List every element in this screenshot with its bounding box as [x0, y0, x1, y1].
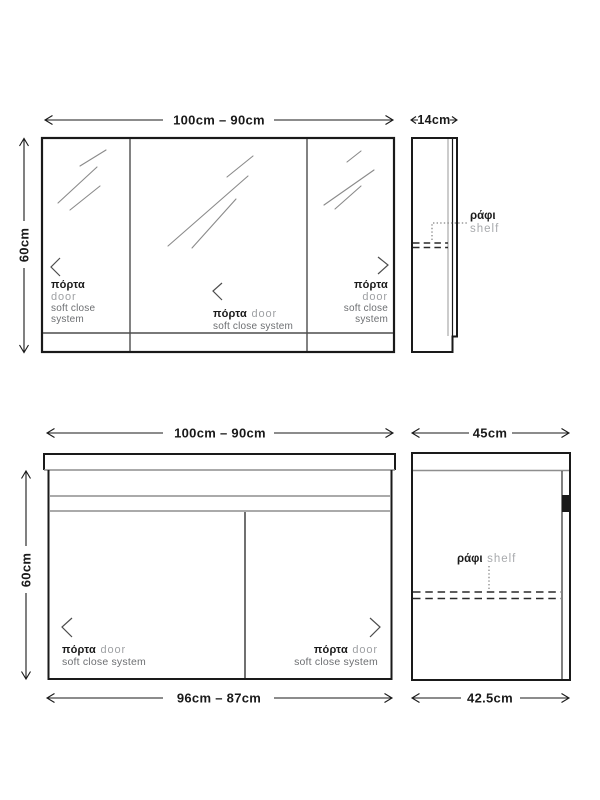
- soft-close-system-label: soft close system: [213, 321, 293, 332]
- vanity-left-door-label: πόρτα door soft close system: [62, 642, 146, 668]
- system-label: system: [344, 314, 388, 325]
- mirror-cabinet-side-view: [412, 138, 467, 352]
- countertop-outline: [44, 454, 395, 470]
- shelf-label-greek: ράφι: [457, 553, 483, 565]
- side-outline: [412, 138, 457, 352]
- door-label-english: door: [251, 308, 277, 320]
- vanity-shelf-label: ράφι shelf: [457, 551, 516, 566]
- soft-close-system-label: soft close system: [294, 657, 378, 668]
- door-label-greek: πόρτα: [62, 644, 96, 656]
- mirror-depth-dimension-label: 14cm: [415, 113, 452, 127]
- door-label-english: door: [100, 644, 126, 656]
- chevron-right-icon: [378, 257, 388, 274]
- vanity-carcass-depth-dimension-label: 42.5cm: [465, 691, 515, 706]
- system-label: system: [51, 314, 95, 325]
- shelf-label-greek: ράφι: [470, 210, 499, 223]
- mirror-height-dimension-label: 60cm: [17, 226, 32, 264]
- door-label-english: door: [344, 291, 388, 303]
- mirror-right-door-label: πόρτα door soft close system: [344, 279, 388, 325]
- chevron-left-icon: [62, 618, 72, 637]
- vanity-depth-dimension-label: 45cm: [471, 426, 509, 441]
- chevron-right-icon: [370, 618, 380, 637]
- soft-close-label: soft close: [344, 303, 388, 314]
- mirror-middle-door-label: πόρτα door soft close system: [213, 306, 293, 332]
- door-label-english: door: [51, 291, 95, 303]
- door-label-english: door: [352, 644, 378, 656]
- vanity-carcass-width-dimension-label: 96cm – 87cm: [175, 691, 263, 706]
- vanity-height-dimension-label: 60cm: [19, 551, 34, 589]
- vanity-side-view: [412, 453, 570, 680]
- door-label-greek: πόρτα: [213, 308, 247, 320]
- shelf-leader-line: [432, 223, 467, 240]
- door-open-chevron-icons: [62, 618, 380, 637]
- mirror-glare-lines: [58, 150, 374, 248]
- door-label-greek: πόρτα: [51, 279, 95, 291]
- shelf-label-english: shelf: [487, 553, 516, 565]
- door-label-greek: πόρτα: [314, 644, 348, 656]
- door-label-greek: πόρτα: [344, 279, 388, 291]
- diagram-lineart: [0, 0, 600, 800]
- chevron-left-icon: [51, 258, 60, 276]
- furniture-dimension-diagram: 100cm – 90cm 14cm 60cm ράφι shelf πόρτα …: [0, 0, 600, 800]
- chevron-left-icon: [213, 283, 222, 300]
- vanity-right-door-label: πόρτα door soft close system: [294, 642, 378, 668]
- vanity-width-dimension-label: 100cm – 90cm: [172, 426, 268, 441]
- door-open-chevron-icons: [51, 257, 388, 300]
- side-outline: [412, 453, 570, 680]
- soft-close-label: soft close: [51, 303, 95, 314]
- shelf-dashed-lines: [413, 243, 448, 248]
- soft-close-system-label: soft close system: [62, 657, 146, 668]
- mirror-shelf-label: ράφι shelf: [470, 210, 499, 236]
- drawer-door-joint: [562, 495, 570, 512]
- mirror-width-dimension-label: 100cm – 90cm: [171, 113, 267, 128]
- shelf-dashed-lines: [413, 592, 561, 599]
- shelf-label-english: shelf: [470, 223, 499, 236]
- mirror-left-door-label: πόρτα door soft close system: [51, 279, 95, 325]
